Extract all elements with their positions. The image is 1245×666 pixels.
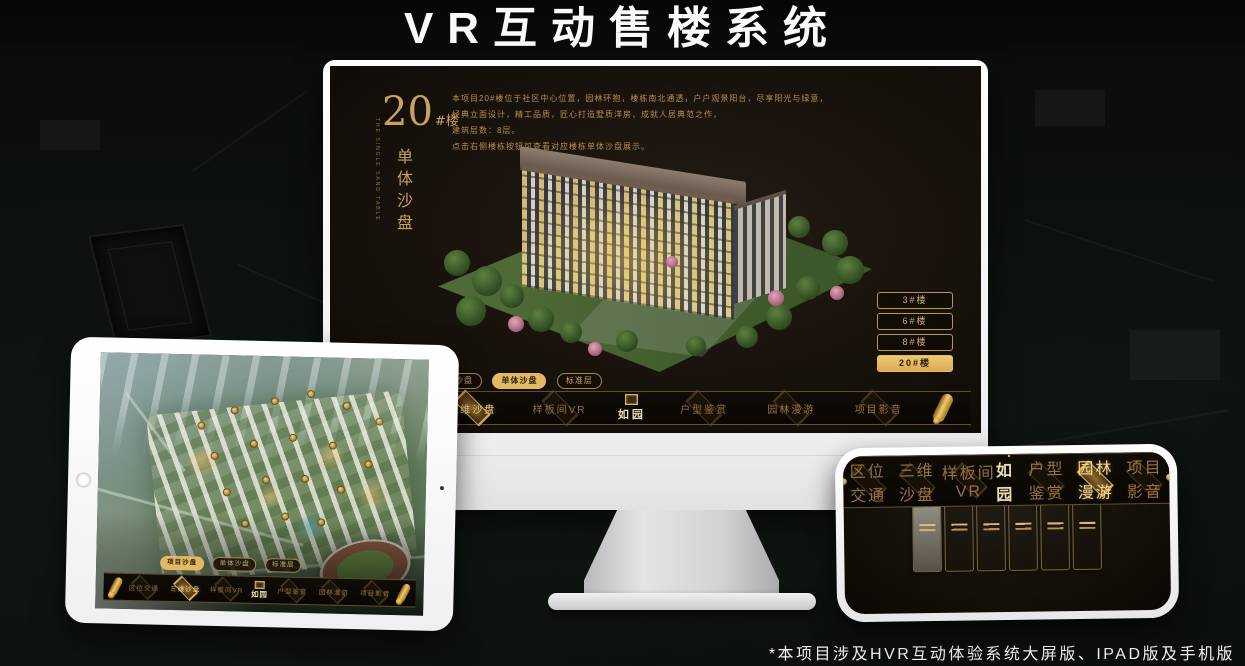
- nav-item-sandbox[interactable]: 三维沙盘: [892, 457, 942, 506]
- model-flower-bush: [768, 290, 784, 306]
- scroll-menu-icon[interactable]: [931, 392, 955, 424]
- building-number-badge[interactable]: [307, 390, 315, 398]
- background-building: [1130, 330, 1220, 380]
- tablet-device: 项目沙盘 单体沙盘 标准层 区位交通 三维沙盘 样板间VR 如园 户型鉴赏 园林…: [65, 337, 459, 632]
- subtab-standard-floor[interactable]: 标准层: [557, 373, 602, 389]
- building-number-badge[interactable]: [222, 488, 230, 496]
- monitor-stand-neck: [584, 510, 779, 598]
- building-number-badge[interactable]: [281, 513, 289, 521]
- tablet-screen: 项目沙盘 单体沙盘 标准层 区位交通 三维沙盘 样板间VR 如园 户型鉴赏 园林…: [95, 352, 429, 615]
- phone-screen: 区位交通 三维沙盘 样板间VR 如园 户型鉴赏 园林漫游 项目影音: [843, 452, 1171, 615]
- building-number-badge[interactable]: [270, 397, 278, 405]
- nav-item-project-media[interactable]: 项目影音: [358, 587, 392, 598]
- heading-vertical: 单体沙盘: [390, 148, 414, 258]
- nav-item-model-room-vr[interactable]: 样板间VR: [210, 584, 244, 595]
- model-flower-bush: [588, 342, 602, 356]
- brand-logo[interactable]: 如园: [618, 394, 646, 422]
- map-road-line: [1025, 219, 1216, 283]
- model-tree: [500, 284, 524, 308]
- model-flower-bush: [508, 316, 524, 332]
- model-tree: [560, 321, 582, 343]
- model-tree: [616, 330, 638, 352]
- floor-button-20[interactable]: 20#楼: [877, 355, 953, 372]
- nav-item-model-room-vr[interactable]: 样板间VR: [531, 401, 589, 416]
- nav-item-floorplans[interactable]: 户型鉴赏: [1022, 455, 1072, 504]
- brand-seal-icon: [255, 580, 265, 588]
- tablet-subtab-group: 项目沙盘 单体沙盘 标准层: [160, 551, 306, 573]
- floor-button-6[interactable]: 6#楼: [877, 313, 953, 330]
- heading-vertical-en: THE SINGLE SAND TABLE: [374, 118, 380, 222]
- description-line: 点击右侧楼栋按钮可查看对应楼栋单体沙盘展示。: [452, 140, 872, 153]
- edition-footnote: *本项目涉及HVR互动体验系统大屏版、IPAD版及手机版: [769, 640, 1235, 664]
- brand-logo[interactable]: 如园: [251, 580, 268, 599]
- floor-button-8[interactable]: 8#楼: [877, 334, 953, 351]
- model-flower-bush: [666, 256, 678, 268]
- model-tree: [796, 276, 820, 300]
- background-plaque: [88, 224, 212, 348]
- subtab-single-sandbox[interactable]: 单体沙盘: [212, 557, 256, 572]
- nav-item-floorplans[interactable]: 户型鉴赏: [275, 585, 309, 596]
- description-line: 本项目20#楼位于社区中心位置，园林环抱，楼栋南北通透，户户观景阳台，尽享阳光与…: [452, 92, 872, 105]
- model-tree: [766, 304, 792, 330]
- tablet-camera-dot: [440, 486, 444, 490]
- nav-item-location[interactable]: 区位交通: [127, 582, 161, 593]
- building-number-badge[interactable]: [375, 417, 383, 425]
- subtab-standard-floor[interactable]: 标准层: [265, 558, 302, 573]
- model-tree: [686, 336, 706, 356]
- background-building: [1035, 90, 1105, 126]
- model-tree: [822, 230, 848, 256]
- building-number: 20#楼: [382, 92, 459, 142]
- scroll-menu-icon[interactable]: [107, 576, 123, 597]
- model-tree: [528, 306, 554, 332]
- model-flower-bush: [830, 286, 844, 300]
- description-line: 经典立面设计，精工品质，匠心打造墅质洋房，成就人居典范之作，: [452, 108, 872, 121]
- model-tree: [788, 216, 810, 238]
- scroll-menu-icon[interactable]: [395, 583, 411, 604]
- promo-canvas: VR互动售楼系统 20#楼 单体沙盘 THE SINGLE SAND TABLE…: [0, 0, 1245, 666]
- model-tree: [456, 296, 486, 326]
- nav-item-garden-tour[interactable]: 园林漫游: [1071, 454, 1121, 503]
- nav-item-sandbox[interactable]: 三维沙盘: [168, 583, 202, 594]
- model-side-facade: [734, 190, 786, 304]
- nav-item-project-media[interactable]: 项目影音: [850, 401, 908, 416]
- page-title: VR互动售楼系统: [0, 0, 1245, 58]
- nav-item-garden-tour[interactable]: 园林漫游: [317, 586, 351, 597]
- brand-logo[interactable]: 如园: [996, 455, 1023, 505]
- nav-item-model-room-vr[interactable]: 样板间VR: [941, 459, 996, 502]
- tablet-home-button[interactable]: [76, 472, 91, 487]
- subtab-single-sandbox[interactable]: 单体沙盘: [492, 373, 546, 389]
- model-tree: [444, 250, 470, 276]
- description-line: 建筑层数：8层。: [452, 124, 872, 137]
- building-number-badge[interactable]: [342, 401, 350, 409]
- building-description: 本项目20#楼位于社区中心位置，园林环抱，楼栋南北通透，户户观景阳台，尽享阳光与…: [452, 92, 872, 156]
- building-number-badge[interactable]: [210, 452, 218, 460]
- background-building: [40, 120, 100, 150]
- nav-item-garden-tour[interactable]: 园林漫游: [762, 401, 820, 416]
- floor-button-group: 3#楼 6#楼 8#楼 20#楼: [877, 292, 953, 372]
- building-3d-model[interactable]: [438, 158, 872, 372]
- floor-button-3[interactable]: 3#楼: [877, 292, 953, 309]
- phone-navbar: 区位交通 三维沙盘 样板间VR 如园 户型鉴赏 园林漫游 项目影音: [843, 452, 1170, 509]
- brand-seal-icon: [625, 394, 638, 405]
- monitor-stand-base: [548, 593, 816, 610]
- model-tree: [472, 266, 502, 296]
- phone-device: 区位交通 三维沙盘 样板间VR 如园 户型鉴赏 园林漫游 项目影音: [835, 444, 1179, 623]
- model-tree: [736, 326, 758, 348]
- nav-item-floorplans[interactable]: 户型鉴赏: [675, 401, 733, 416]
- subtab-project-sandbox[interactable]: 项目沙盘: [160, 556, 204, 571]
- model-tree: [836, 256, 864, 284]
- map-road-line: [192, 90, 308, 172]
- nav-item-project-media[interactable]: 项目影音: [1120, 454, 1170, 503]
- nav-item-location[interactable]: 区位交通: [843, 458, 893, 507]
